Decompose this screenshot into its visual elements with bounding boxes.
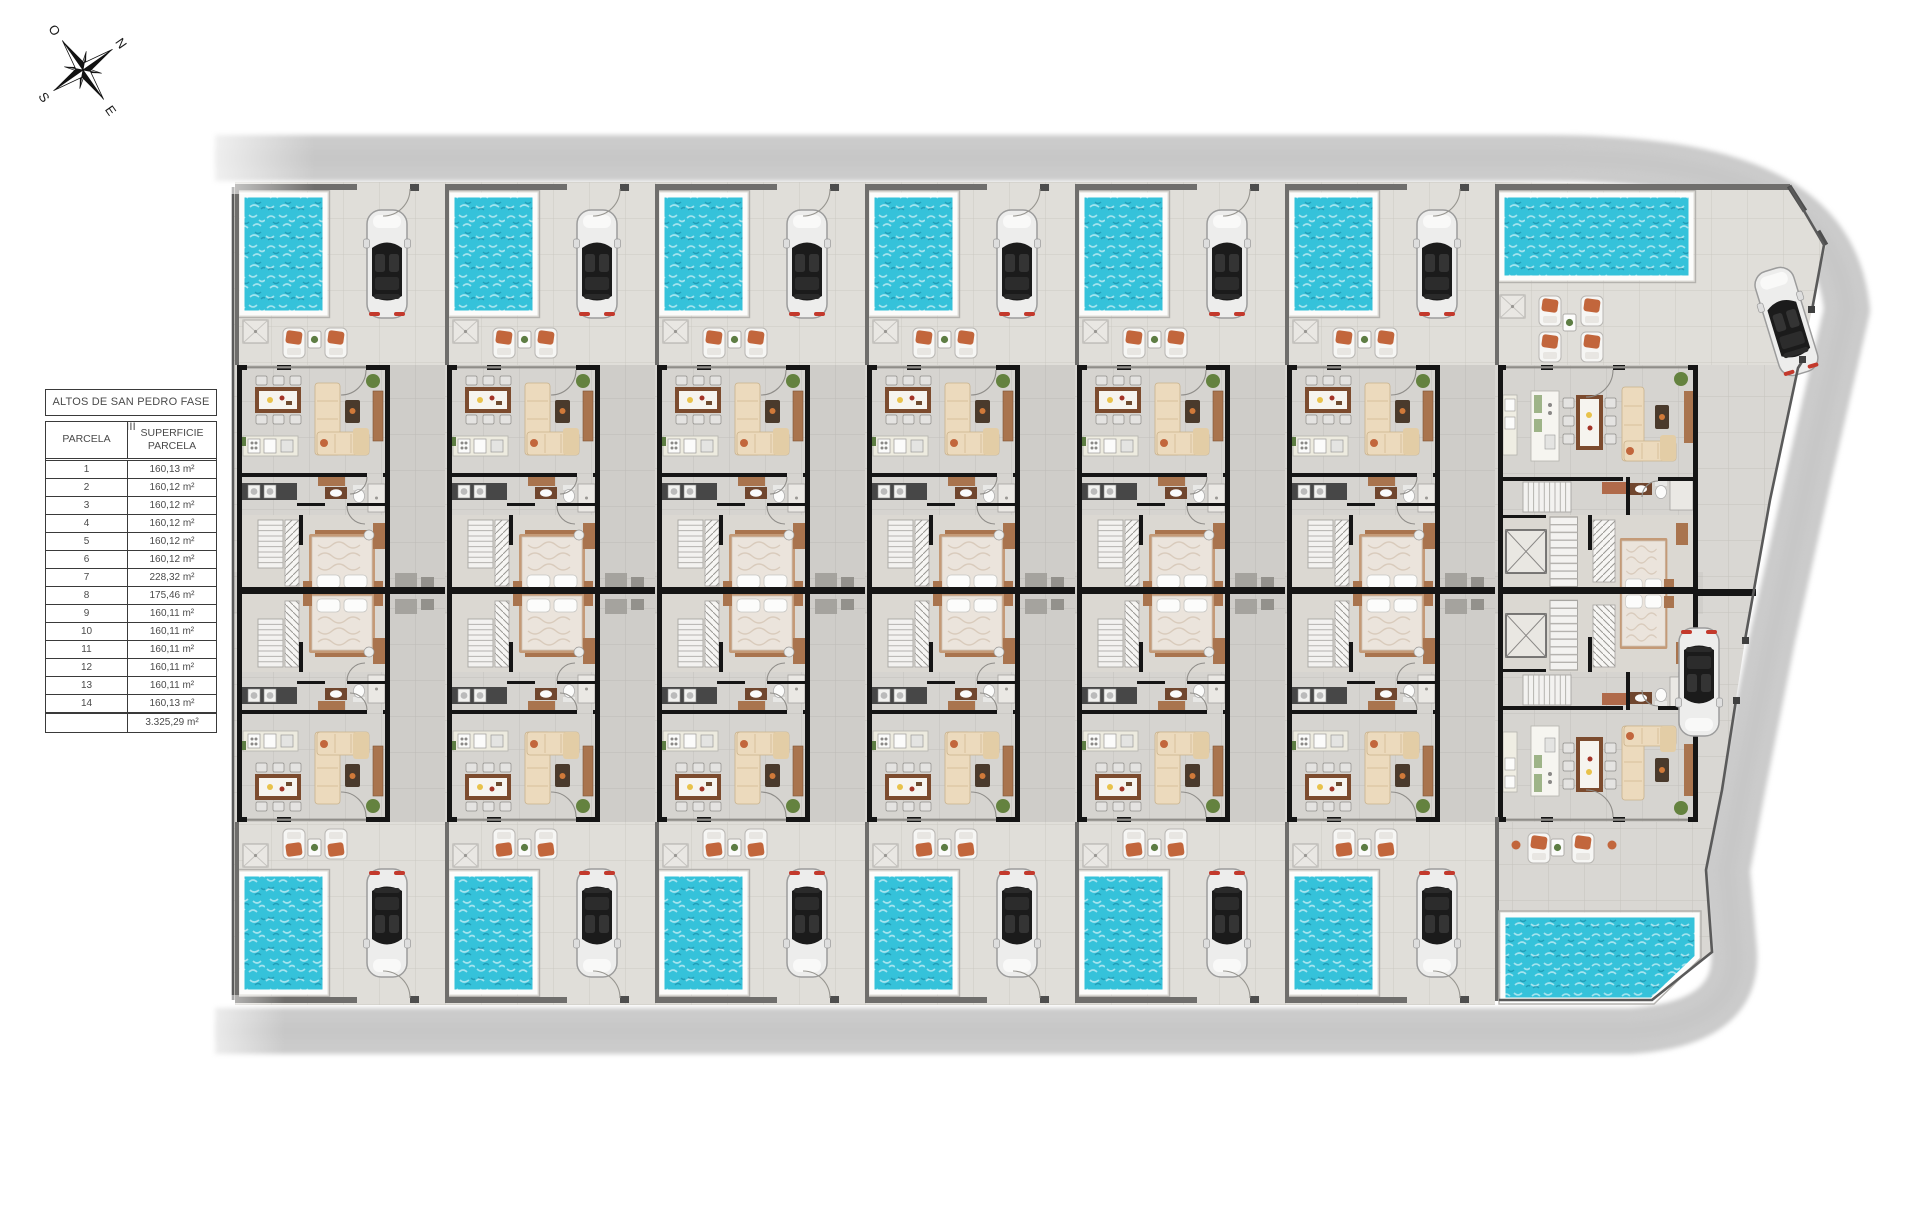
parcel-10-unit bbox=[1075, 587, 1285, 1005]
parcel-2-unit bbox=[445, 182, 655, 600]
table-row: 9160,11 m² bbox=[46, 604, 216, 622]
row-area-value: 160,11 m² bbox=[128, 605, 216, 622]
row-parcel-number: 14 bbox=[46, 695, 128, 712]
table-row: 3160,12 m² bbox=[46, 496, 216, 514]
row-parcel-number: 6 bbox=[46, 551, 128, 568]
parcel-1-unit bbox=[235, 182, 445, 600]
plant-pot bbox=[1512, 841, 1521, 850]
row-parcel-number: 11 bbox=[46, 641, 128, 658]
parcel-6-unit bbox=[1285, 182, 1495, 600]
parcel-table-rows: 1160,13 m²2160,12 m²3160,12 m²4160,12 m²… bbox=[46, 461, 216, 712]
gate-post bbox=[1799, 356, 1806, 363]
table-row: 6160,12 m² bbox=[46, 550, 216, 568]
plant-pot bbox=[1608, 841, 1617, 850]
total-area-value: 3.325,29 m² bbox=[128, 714, 216, 732]
compass-north-label: N bbox=[112, 35, 130, 51]
parcel-12-unit bbox=[655, 587, 865, 1005]
gate-post bbox=[1808, 306, 1815, 313]
row-area-value: 160,11 m² bbox=[128, 677, 216, 694]
parcel-3-unit bbox=[655, 182, 865, 600]
total-label-cell bbox=[46, 714, 128, 732]
parcel-11-unit bbox=[865, 587, 1075, 1005]
row-area-value: 175,46 m² bbox=[128, 587, 216, 604]
table-row: 11160,11 m² bbox=[46, 640, 216, 658]
row-area-value: 160,12 m² bbox=[128, 533, 216, 550]
parcel-table-title: ALTOS DE SAN PEDRO FASE III bbox=[45, 389, 217, 416]
table-row: 4160,12 m² bbox=[46, 514, 216, 532]
table-row: 7228,32 m² bbox=[46, 568, 216, 586]
row-area-value: 160,11 m² bbox=[128, 641, 216, 658]
row-parcel-number: 1 bbox=[46, 461, 128, 478]
table-row: 5160,12 m² bbox=[46, 532, 216, 550]
table-row: 13160,11 m² bbox=[46, 676, 216, 694]
parcel-table: ALTOS DE SAN PEDRO FASE III PARCELA SUPE… bbox=[45, 389, 217, 733]
table-row: 10160,11 m² bbox=[46, 622, 216, 640]
street-wall bbox=[1495, 184, 1790, 190]
parcel-14-unit bbox=[235, 587, 445, 1005]
parcel-9-unit bbox=[1285, 587, 1495, 1005]
row-area-value: 160,12 m² bbox=[128, 515, 216, 532]
column-header-parcela: PARCELA bbox=[46, 422, 128, 458]
row-parcel-number: 10 bbox=[46, 623, 128, 640]
parcel-table-body: PARCELA SUPERFICIE PARCELA 1160,13 m²216… bbox=[45, 421, 217, 733]
parcel-table-header: PARCELA SUPERFICIE PARCELA bbox=[46, 422, 216, 461]
pool bbox=[1498, 191, 1696, 283]
compass-rose: N E S O bbox=[18, 8, 148, 138]
site-plan bbox=[0, 0, 1920, 1211]
row-parcel-number: 9 bbox=[46, 605, 128, 622]
row-area-value: 160,13 m² bbox=[128, 695, 216, 712]
total-row: 3.325,29 m² bbox=[46, 712, 216, 732]
table-row: 1160,13 m² bbox=[46, 461, 216, 478]
table-row: 8175,46 m² bbox=[46, 586, 216, 604]
row-parcel-number: 12 bbox=[46, 659, 128, 676]
column-header-superficie: SUPERFICIE PARCELA bbox=[128, 422, 216, 458]
row-area-value: 160,12 m² bbox=[128, 551, 216, 568]
compass-west-label: O bbox=[45, 22, 63, 39]
row-parcel-number: 8 bbox=[46, 587, 128, 604]
parcel-4-unit bbox=[865, 182, 1075, 600]
floorplan-page: N E S O ALTOS DE SAN PEDRO FASE III PARC… bbox=[0, 0, 1920, 1211]
compass-east-label: E bbox=[102, 103, 119, 119]
parcel-13-unit bbox=[445, 587, 655, 1005]
row-parcel-number: 7 bbox=[46, 569, 128, 586]
row-area-value: 160,12 m² bbox=[128, 497, 216, 514]
table-row: 14160,13 m² bbox=[46, 694, 216, 712]
row-area-value: 160,13 m² bbox=[128, 461, 216, 478]
row-parcel-number: 4 bbox=[46, 515, 128, 532]
row-area-value: 160,12 m² bbox=[128, 479, 216, 496]
side-fence bbox=[1495, 184, 1499, 365]
row-parcel-number: 3 bbox=[46, 497, 128, 514]
row-area-value: 228,32 m² bbox=[128, 569, 216, 586]
row-area-value: 160,11 m² bbox=[128, 659, 216, 676]
table-row: 2160,12 m² bbox=[46, 478, 216, 496]
pool bbox=[1499, 911, 1701, 1004]
compass-star bbox=[33, 20, 133, 120]
parcel-5-unit bbox=[1075, 182, 1285, 600]
row-parcel-number: 5 bbox=[46, 533, 128, 550]
table-row: 12160,11 m² bbox=[46, 658, 216, 676]
row-parcel-number: 13 bbox=[46, 677, 128, 694]
row-area-value: 160,11 m² bbox=[128, 623, 216, 640]
gate-post bbox=[1742, 637, 1749, 644]
gate-post bbox=[1733, 697, 1740, 704]
row-parcel-number: 2 bbox=[46, 479, 128, 496]
compass-south-label: S bbox=[35, 89, 52, 105]
